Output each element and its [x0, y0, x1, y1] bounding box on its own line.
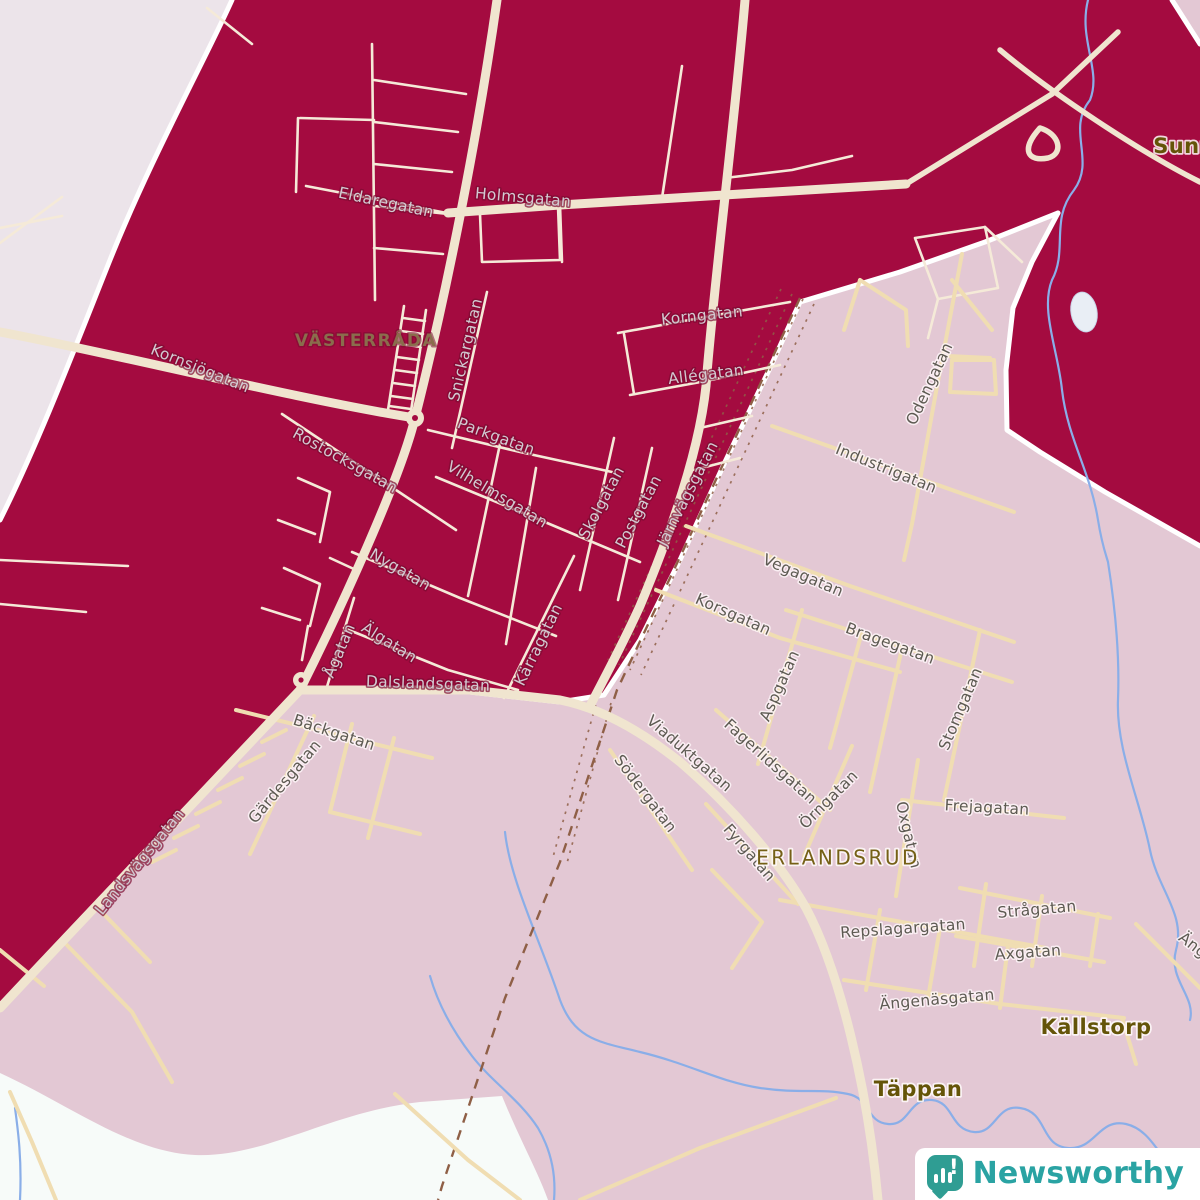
place-label: Sunn [1153, 134, 1200, 158]
newsworthy-logo[interactable]: ! Newsworthy [915, 1148, 1200, 1200]
newsworthy-logo-text: Newsworthy [973, 1156, 1184, 1191]
exclamation-glyph: ! [949, 1157, 959, 1178]
map-canvas: EldaregatanHolmsgatanKornsjögatanSnickar… [0, 0, 1200, 1200]
place-label: Täppan [874, 1077, 962, 1101]
place-label: Källstorp [1041, 1015, 1152, 1039]
map-graphic: EldaregatanHolmsgatanKornsjögatanSnickar… [0, 0, 1200, 1200]
place-label: VÄSTERRÅDA [295, 328, 437, 351]
place-label: ERLANDSRUD [756, 846, 920, 870]
newsworthy-chart-bubble-icon: ! [927, 1155, 963, 1191]
